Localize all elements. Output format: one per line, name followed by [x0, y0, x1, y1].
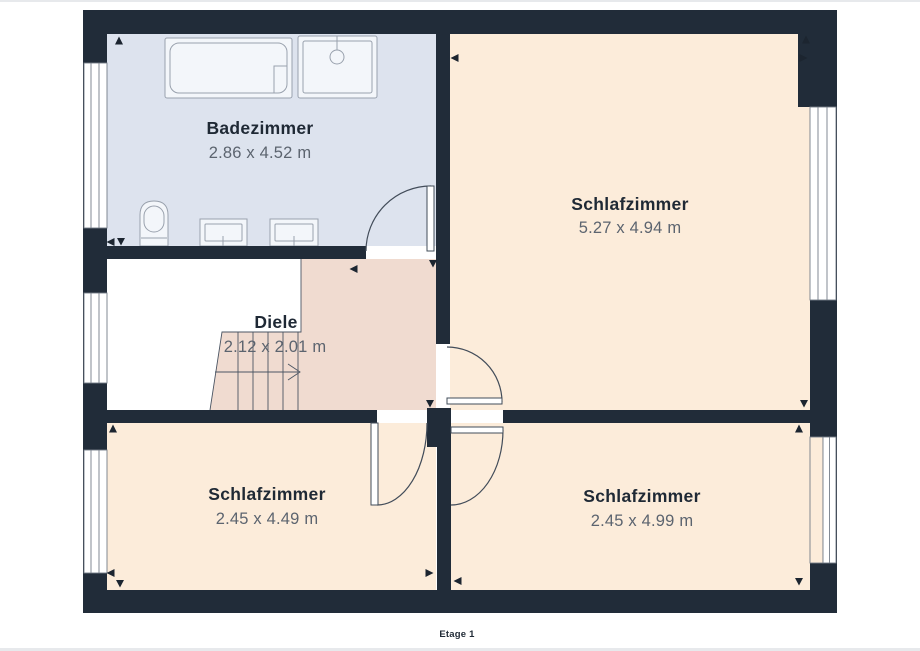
wall-bottom	[83, 590, 837, 613]
room-dims-diele: 2.12 x 2.01 m	[224, 338, 327, 356]
door-leaf	[427, 186, 434, 251]
room-label-schlafzimmer-bottom-left: Schlafzimmer	[208, 484, 325, 504]
window-bedroom-bottom-right	[810, 437, 836, 563]
room-dims-schlafzimmer-top-right: 5.27 x 4.94 m	[579, 219, 682, 237]
wall-middle-right	[503, 410, 837, 423]
wall-bottom-divider	[437, 447, 451, 590]
toilet-icon	[140, 201, 168, 246]
wall-junction-stub	[427, 408, 451, 447]
room-dims-schlafzimmer-bottom-right: 2.45 x 4.99 m	[591, 512, 694, 530]
wall-bathroom-diele	[83, 246, 366, 259]
sink-icon	[270, 219, 318, 246]
shower-icon	[298, 36, 377, 98]
wall-top	[83, 10, 837, 34]
top-edge-line	[0, 0, 920, 2]
door-leaf	[371, 423, 378, 505]
sink-icon	[200, 219, 247, 246]
door-leaf	[447, 398, 502, 404]
floor-caption: Etage 1	[439, 629, 475, 640]
room-schlafzimmer-bottom-right	[451, 423, 810, 590]
doorway-bedroom-bottom-left	[377, 410, 427, 423]
window-diele	[84, 293, 107, 383]
floor-plan-page: Badezimmer 2.86 x 4.52 m Schlafzimmer 5.…	[0, 0, 920, 651]
room-dims-badezimmer: 2.86 x 4.52 m	[209, 144, 312, 162]
window-bedroom-bottom-left	[84, 450, 107, 573]
window-bedroom-top-right	[810, 107, 836, 300]
door-leaf	[451, 427, 503, 433]
window-bathroom	[84, 63, 107, 228]
wall-center-vertical	[436, 34, 450, 344]
room-label-schlafzimmer-top-right: Schlafzimmer	[571, 194, 688, 214]
room-dims-schlafzimmer-bottom-left: 2.45 x 4.49 m	[216, 510, 319, 528]
doorway-bathroom	[366, 246, 433, 259]
room-label-diele: Diele	[254, 312, 297, 332]
bathtub-icon	[165, 38, 292, 98]
doorway-bedroom-bottom-right	[451, 410, 503, 423]
room-label-schlafzimmer-bottom-right: Schlafzimmer	[583, 486, 700, 506]
floor-plan: Badezimmer 2.86 x 4.52 m Schlafzimmer 5.…	[0, 0, 920, 651]
wall-middle-left	[83, 410, 377, 423]
room-label-badezimmer: Badezimmer	[206, 118, 313, 138]
room-schlafzimmer-bottom-left	[107, 423, 436, 590]
